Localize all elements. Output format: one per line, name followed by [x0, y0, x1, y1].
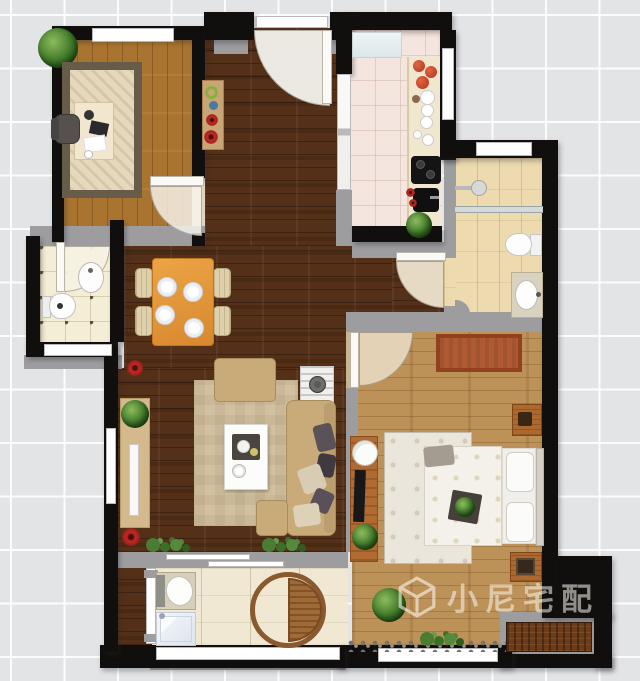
hall-decor-red-flower-1	[206, 114, 218, 126]
watermark-text: 小尼宅配	[447, 574, 599, 619]
shower-head	[471, 180, 487, 196]
wall-hall-kitchen-lower	[336, 190, 352, 246]
wall-dining-small-bath	[110, 220, 124, 342]
bedroom-window-shrub	[420, 632, 434, 646]
vanity-faucet	[536, 292, 541, 297]
living-window-shrub-1	[146, 538, 160, 552]
place-setting-4	[184, 318, 204, 338]
wall-bath-main-right	[542, 158, 558, 334]
main-bathroom-door-leaf	[396, 252, 446, 261]
sofa-chaise	[256, 500, 288, 536]
living-left-window	[106, 428, 116, 504]
washing-machine-dial	[159, 613, 165, 619]
nightstand-bottom-item	[516, 558, 535, 575]
bedroom-door-leaf	[350, 332, 359, 388]
dining-chair-left-1	[135, 268, 153, 298]
balcony-sliding-window-panel-a	[166, 554, 250, 560]
wall-hall-kitchen-upper	[336, 30, 352, 74]
kitchen-burner-1	[416, 160, 425, 169]
nightstand-top-item	[518, 412, 532, 426]
wall-platform-bottom	[498, 654, 612, 668]
study-chair-back	[51, 118, 59, 140]
small-bathroom-door-leaf	[56, 242, 65, 292]
dining-chair-right-2	[213, 306, 231, 336]
study-door-leaf	[150, 176, 204, 186]
balcony-glass-door	[146, 568, 156, 644]
balcony-sliding-window-panel-b	[208, 561, 284, 567]
washing-machine-lid	[160, 616, 192, 642]
coffee-table-clock	[232, 464, 246, 478]
kitchen-red-flower-2	[409, 199, 417, 207]
balcony-bottom-window	[156, 647, 340, 660]
kitchen-plant	[406, 212, 432, 238]
place-setting-3	[155, 305, 175, 325]
tray-cup	[250, 448, 258, 456]
living-red-flower-bottom	[122, 528, 140, 546]
kitchen-plate-small	[413, 130, 422, 139]
kitchen-plate-3	[420, 116, 433, 129]
kitchen-plate-4	[422, 134, 434, 146]
ottoman-armchair	[214, 358, 276, 402]
toilet-small-button	[57, 303, 63, 309]
tray-plate	[237, 440, 250, 453]
kitchen-cooktop	[411, 156, 441, 184]
ac-cabinet	[506, 622, 592, 652]
watermark-cube-logo	[396, 576, 438, 618]
bed-headboard	[536, 448, 544, 546]
sofa-pillow-cream-2	[293, 502, 322, 527]
bedroom-dresser-plant	[352, 524, 378, 550]
floor-plan-canvas: 小尼宅配	[0, 0, 640, 681]
kitchen-sink	[413, 188, 439, 212]
bedroom-side-table	[352, 440, 378, 466]
kitchen-plate-1	[420, 90, 435, 105]
wall-entry-top-left	[204, 12, 254, 40]
kitchen-faucet	[430, 196, 439, 199]
entrance-threshold	[256, 16, 328, 28]
kitchen-right-window	[442, 48, 454, 120]
dining-chair-right-1	[213, 268, 231, 298]
kitchen-burner-2	[426, 170, 435, 179]
kitchen-bowl-brown	[412, 95, 420, 103]
hall-decor-teal	[209, 101, 218, 110]
side-table-lamp	[309, 376, 326, 393]
bed-pillow-2	[506, 502, 534, 542]
shower-glass-screen	[455, 206, 543, 213]
dining-chair-left-2	[135, 306, 153, 336]
kitchen-plate-2	[421, 104, 434, 117]
entrance-door-leaf	[322, 30, 332, 104]
watermark: 小尼宅配	[396, 574, 599, 619]
wall-entry-cap-left	[214, 40, 248, 54]
kitchen-fridge	[352, 32, 402, 58]
living-window-shrub-2	[262, 538, 276, 552]
pedestal-sink-drain	[88, 268, 93, 273]
wall-kitchen-top	[346, 12, 452, 30]
wall-living-left	[104, 364, 118, 652]
small-bath-bottom-window	[44, 344, 112, 356]
tv-panel	[129, 444, 139, 516]
kitchen-tomato-3	[416, 76, 429, 89]
hall-decor-red-flower-2	[204, 130, 218, 144]
study-cup	[84, 150, 93, 159]
bed-tray-plant	[455, 497, 475, 517]
vanity-sink	[515, 280, 538, 310]
study-desk-object	[84, 110, 94, 120]
place-setting-1	[157, 277, 177, 297]
pedestal-sink	[78, 262, 104, 293]
dining-table	[152, 258, 214, 346]
kitchen-tomato-1	[413, 60, 425, 72]
living-red-flower-top	[127, 360, 143, 376]
toilet-main-bowl	[505, 233, 532, 256]
bed-pillow-1	[506, 452, 534, 492]
wall-small-bath-left	[26, 236, 40, 348]
hall-decor-green-ring	[205, 86, 218, 99]
kitchen-sliding-door	[337, 74, 351, 190]
kitchen-tomato-2	[425, 66, 437, 78]
laundry-sink-side	[156, 575, 165, 607]
kitchen-red-flower-1	[406, 188, 415, 197]
tv-console-plant	[121, 400, 149, 428]
bedroom-red-rug	[436, 334, 522, 372]
bath-main-top-window	[476, 142, 532, 156]
study-top-window	[92, 28, 174, 42]
bedroom-tv	[353, 470, 366, 522]
bed-throw	[423, 444, 455, 467]
place-setting-2	[183, 282, 203, 302]
